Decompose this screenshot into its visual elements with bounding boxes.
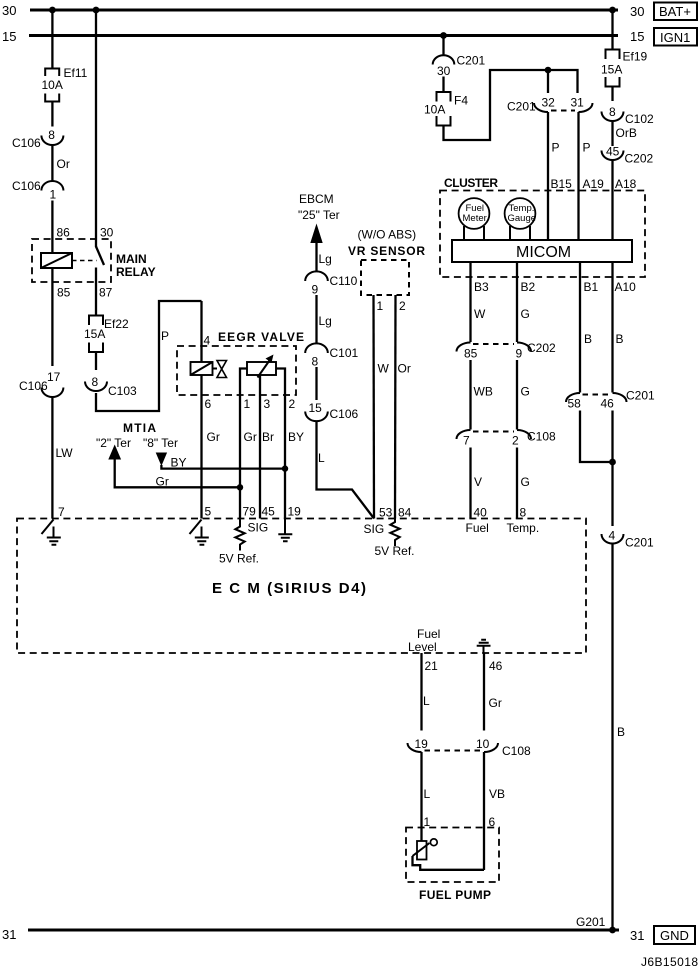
svg-text:C101: C101 <box>330 346 359 360</box>
svg-text:17: 17 <box>47 370 61 384</box>
svg-text:5: 5 <box>205 505 212 519</box>
svg-text:2: 2 <box>289 397 296 411</box>
svg-text:Ef19: Ef19 <box>623 50 648 64</box>
svg-text:1: 1 <box>377 299 384 313</box>
svg-text:87: 87 <box>99 286 113 300</box>
svg-text:C108: C108 <box>502 744 531 758</box>
svg-text:P: P <box>161 329 169 343</box>
svg-text:Ef22: Ef22 <box>104 317 129 331</box>
svg-text:31: 31 <box>630 928 644 943</box>
svg-text:5V Ref.: 5V Ref. <box>219 552 259 566</box>
svg-text:C202: C202 <box>527 341 556 355</box>
svg-text:30: 30 <box>100 226 114 240</box>
svg-text:Lg: Lg <box>319 314 332 328</box>
svg-text:F4: F4 <box>454 94 468 108</box>
svg-text:5V Ref.: 5V Ref. <box>375 544 415 558</box>
svg-text:30: 30 <box>437 64 451 78</box>
svg-text:8: 8 <box>312 355 319 369</box>
svg-text:45: 45 <box>262 505 276 519</box>
svg-text:B3: B3 <box>474 280 489 294</box>
svg-text:MICOM: MICOM <box>516 244 571 261</box>
svg-text:MTIA: MTIA <box>123 421 156 435</box>
svg-text:G201: G201 <box>576 915 606 929</box>
svg-text:85: 85 <box>464 347 478 361</box>
svg-text:RELAY: RELAY <box>116 265 156 279</box>
svg-text:21: 21 <box>425 659 439 673</box>
svg-text:4: 4 <box>609 529 616 543</box>
svg-text:V: V <box>474 475 482 489</box>
svg-text:P: P <box>552 141 560 155</box>
svg-text:15A: 15A <box>84 327 105 341</box>
svg-text:G: G <box>521 385 530 399</box>
svg-text:Meter: Meter <box>463 213 487 224</box>
svg-text:B: B <box>617 725 625 739</box>
svg-text:C108: C108 <box>527 430 556 444</box>
svg-text:3: 3 <box>264 397 271 411</box>
svg-text:SIG: SIG <box>364 522 385 536</box>
svg-text:10: 10 <box>476 737 490 751</box>
svg-text:E C M (SIRIUS D4): E C M (SIRIUS D4) <box>212 580 366 597</box>
svg-text:19: 19 <box>288 505 302 519</box>
svg-text:10A: 10A <box>424 103 445 117</box>
svg-text:Gauge: Gauge <box>508 213 537 224</box>
svg-text:VB: VB <box>489 787 505 801</box>
svg-text:C201: C201 <box>626 389 655 403</box>
svg-text:BY: BY <box>288 430 304 444</box>
svg-text:FUEL PUMP: FUEL PUMP <box>419 888 491 902</box>
svg-text:"8" Ter: "8" Ter <box>143 436 178 450</box>
svg-text:C103: C103 <box>108 384 137 398</box>
svg-text:30: 30 <box>630 4 644 19</box>
svg-text:Br: Br <box>262 430 274 444</box>
svg-text:2: 2 <box>399 299 406 313</box>
svg-text:2: 2 <box>512 434 519 448</box>
svg-text:86: 86 <box>57 226 71 240</box>
svg-text:85: 85 <box>57 286 71 300</box>
svg-text:"25" Ter: "25" Ter <box>298 208 340 222</box>
svg-text:46: 46 <box>601 397 615 411</box>
svg-text:32: 32 <box>542 96 556 110</box>
svg-text:31: 31 <box>571 96 585 110</box>
svg-text:7: 7 <box>58 505 65 519</box>
svg-text:C202: C202 <box>625 152 654 166</box>
svg-text:79: 79 <box>243 505 257 519</box>
svg-text:7: 7 <box>463 434 470 448</box>
svg-text:Temp.: Temp. <box>507 521 540 535</box>
svg-text:LW: LW <box>56 446 74 460</box>
svg-text:C201: C201 <box>625 536 654 550</box>
svg-text:8: 8 <box>48 128 55 142</box>
svg-text:C201: C201 <box>507 100 536 114</box>
svg-text:45: 45 <box>606 145 620 159</box>
svg-text:W: W <box>378 362 390 376</box>
svg-text:8: 8 <box>92 375 99 389</box>
svg-text:C106: C106 <box>12 179 41 193</box>
svg-text:58: 58 <box>568 397 582 411</box>
svg-text:Gr: Gr <box>156 475 169 489</box>
svg-text:Ef11: Ef11 <box>64 66 88 80</box>
svg-text:31: 31 <box>2 927 16 942</box>
svg-text:EBCM: EBCM <box>299 192 334 206</box>
svg-text:L: L <box>424 787 431 801</box>
svg-text:L: L <box>318 451 325 465</box>
svg-text:30: 30 <box>2 3 16 18</box>
svg-text:BAT+: BAT+ <box>659 4 691 19</box>
svg-text:(W/O ABS): (W/O ABS) <box>358 228 417 242</box>
svg-text:19: 19 <box>415 737 429 751</box>
svg-text:15: 15 <box>2 29 16 44</box>
svg-text:Fuel: Fuel <box>466 521 489 535</box>
svg-text:MAIN: MAIN <box>116 252 147 266</box>
svg-text:8: 8 <box>520 506 527 520</box>
svg-text:46: 46 <box>489 659 503 673</box>
svg-text:GND: GND <box>660 928 689 943</box>
svg-text:9: 9 <box>312 283 319 297</box>
svg-text:B15: B15 <box>551 177 573 191</box>
svg-text:10A: 10A <box>42 78 63 92</box>
svg-text:A18: A18 <box>615 177 637 191</box>
svg-text:8: 8 <box>609 105 616 119</box>
svg-text:G: G <box>521 307 530 321</box>
svg-text:A19: A19 <box>583 177 605 191</box>
svg-text:VR SENSOR: VR SENSOR <box>348 244 425 258</box>
svg-text:6: 6 <box>205 397 212 411</box>
svg-text:B1: B1 <box>584 280 599 294</box>
svg-text:OrB: OrB <box>616 126 637 140</box>
svg-text:L: L <box>423 694 430 708</box>
svg-text:15A: 15A <box>601 63 622 77</box>
svg-text:Gr: Gr <box>489 696 502 710</box>
svg-text:W: W <box>474 307 486 321</box>
svg-text:15: 15 <box>309 401 323 415</box>
svg-text:Lg: Lg <box>319 252 332 266</box>
svg-text:C106: C106 <box>330 407 359 421</box>
svg-text:Level: Level <box>408 640 437 654</box>
svg-text:SIG: SIG <box>248 521 269 535</box>
svg-text:Or: Or <box>57 157 70 171</box>
svg-text:B: B <box>584 332 592 346</box>
svg-text:J6B15018: J6B15018 <box>641 955 698 969</box>
svg-text:IGN1: IGN1 <box>660 30 690 45</box>
svg-text:A10: A10 <box>615 280 637 294</box>
svg-text:1: 1 <box>50 188 57 202</box>
svg-text:C110: C110 <box>330 274 358 288</box>
svg-text:84: 84 <box>398 506 412 520</box>
svg-text:G: G <box>521 475 530 489</box>
svg-text:CLUSTER: CLUSTER <box>444 176 498 190</box>
svg-text:C106: C106 <box>12 136 41 150</box>
svg-text:C106: C106 <box>19 379 48 393</box>
svg-text:Fuel: Fuel <box>417 627 440 641</box>
svg-text:B: B <box>616 332 624 346</box>
svg-text:EEGR VALVE: EEGR VALVE <box>218 330 304 344</box>
svg-text:1: 1 <box>244 397 251 411</box>
svg-text:B2: B2 <box>521 280 536 294</box>
svg-text:BY: BY <box>171 456 187 470</box>
svg-text:WB: WB <box>474 385 493 399</box>
svg-text:15: 15 <box>630 29 644 44</box>
svg-text:P: P <box>583 141 591 155</box>
svg-text:Gr: Gr <box>207 430 220 444</box>
svg-text:40: 40 <box>474 506 488 520</box>
svg-text:C102: C102 <box>625 112 654 126</box>
svg-text:53: 53 <box>379 506 393 520</box>
svg-text:Gr: Gr <box>244 430 257 444</box>
svg-text:Or: Or <box>398 362 411 376</box>
svg-text:C201: C201 <box>457 54 486 68</box>
svg-text:9: 9 <box>516 347 523 361</box>
